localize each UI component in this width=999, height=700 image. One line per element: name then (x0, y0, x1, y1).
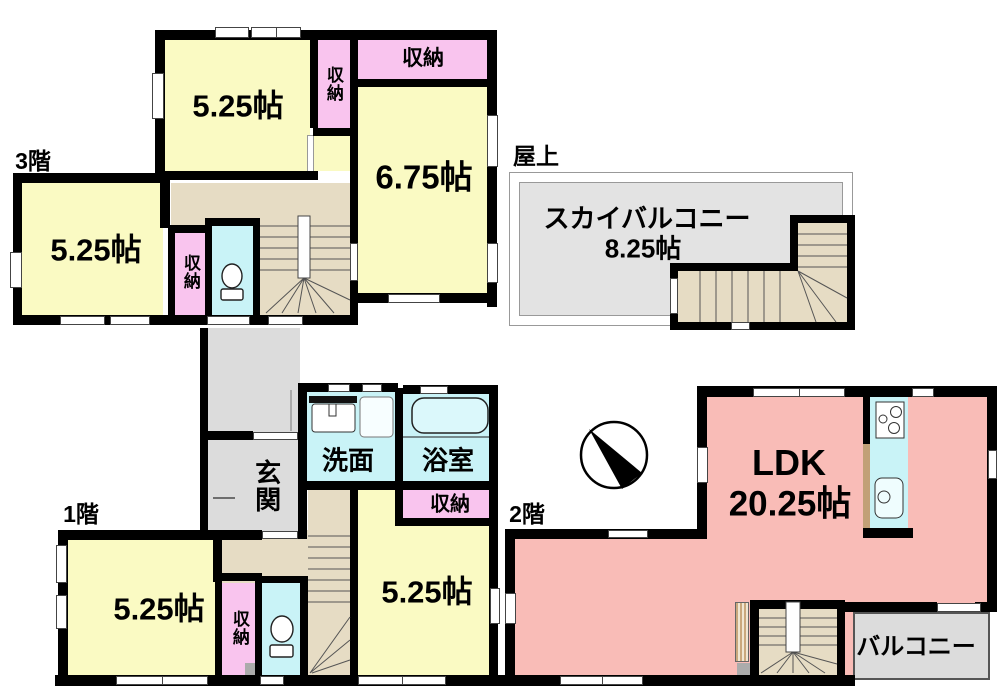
window-opening (912, 388, 934, 397)
toilet-1f-floor (262, 583, 300, 675)
wall (208, 431, 253, 440)
wall (505, 529, 707, 539)
wall (58, 530, 262, 540)
floor-label-roof: 屋上 (513, 144, 559, 168)
wall (298, 481, 498, 490)
wall (255, 580, 262, 676)
wall (790, 215, 855, 223)
wall (863, 392, 870, 444)
sliding-door-marker (307, 135, 314, 172)
wall (298, 385, 307, 539)
wall (155, 171, 318, 180)
wall (697, 386, 997, 397)
washroom-label: 洗面 (322, 447, 374, 474)
floor-plan: 3階 5.25帖 収納 収納 6.75帖 5.25帖 収納 屋上 スカイバルコニ… (0, 0, 999, 700)
wall (750, 600, 845, 609)
window-opening (937, 603, 981, 612)
wall (847, 215, 855, 330)
window-opening (253, 432, 298, 440)
floor-label-2f: 2階 (509, 502, 545, 526)
wall (505, 675, 855, 686)
window-opening (56, 545, 67, 583)
window-opening (608, 530, 648, 538)
window-opening (262, 531, 298, 539)
window-opening (358, 676, 446, 685)
stairs-3f-area (260, 183, 350, 315)
wall (395, 388, 403, 526)
ldk-size: 20.25帖 (729, 487, 852, 524)
window-opening (505, 593, 516, 624)
wall (403, 385, 497, 394)
window-opening (697, 447, 708, 483)
window-opening (988, 450, 997, 479)
wall (358, 79, 487, 87)
room-3f-left-size: 5.25帖 (50, 235, 141, 268)
window-opening (56, 595, 67, 629)
wall (13, 173, 22, 325)
window-opening (490, 588, 500, 624)
wall (310, 40, 318, 128)
sky-balcony-name: スカイバルコニー (544, 205, 751, 232)
stairs-roof-horizontal-area (678, 271, 847, 322)
window-opening (350, 243, 358, 281)
stairs-2f-railing (735, 602, 749, 662)
wall (300, 576, 308, 676)
window-opening (328, 384, 350, 392)
window-opening (487, 243, 498, 283)
wall (863, 528, 913, 538)
wall (215, 580, 222, 676)
window-opening (731, 322, 750, 330)
room-3f-right-size: 6.75帖 (375, 161, 472, 196)
room-3f-top-nook (313, 136, 350, 171)
wall (200, 328, 208, 539)
wall (350, 483, 358, 676)
wall (398, 518, 498, 526)
window-opening (362, 384, 382, 392)
wall (670, 263, 798, 271)
window-opening (388, 294, 440, 303)
wall (168, 225, 175, 317)
window-opening (116, 676, 208, 685)
window-opening (215, 27, 249, 38)
storage-3f-topright-label: 収納 (402, 48, 444, 70)
window-opening (207, 316, 250, 325)
window-opening (152, 73, 164, 119)
wall (987, 386, 997, 612)
room-1f-right-size: 5.25帖 (381, 577, 472, 610)
bathroom-label: 浴室 (422, 447, 474, 474)
wall (155, 30, 497, 40)
wall (205, 218, 260, 226)
window-opening (670, 278, 678, 314)
stairs-1f-area (308, 490, 350, 675)
stairs-roof-vertical-area (798, 223, 847, 271)
toilet-3f-floor (212, 226, 253, 315)
window-opening (110, 316, 150, 325)
storage-1f-left-label: 収納 (230, 610, 248, 646)
stairs-2f-area (759, 609, 837, 675)
window-opening (420, 386, 448, 394)
window-opening (60, 316, 105, 325)
window-opening (268, 316, 303, 325)
window-opening (560, 676, 643, 685)
window-opening (10, 252, 22, 288)
wall (253, 218, 260, 317)
wall (205, 218, 212, 317)
wall (845, 602, 937, 612)
wall (837, 600, 845, 686)
room-3f-top-size: 5.25帖 (192, 91, 283, 124)
wall (313, 128, 350, 136)
room-1f-left-size: 5.25帖 (113, 594, 204, 627)
wall (750, 600, 759, 686)
wall (13, 173, 163, 183)
window-opening (753, 388, 845, 397)
wall (489, 385, 498, 686)
wall (670, 322, 855, 330)
entrance-label: 玄関 (252, 459, 279, 513)
sky-balcony-size: 8.25帖 (605, 235, 682, 262)
wall (160, 180, 170, 228)
storage-3f-strip-label: 収納 (324, 66, 342, 102)
porch-floor (208, 328, 300, 433)
window-opening (260, 676, 284, 685)
floor-label-3f: 3階 (15, 149, 51, 173)
storage-3f-left-label: 収納 (181, 254, 199, 290)
balcony-label: バルコニー (856, 634, 976, 659)
window-opening (251, 27, 301, 38)
floor-label-1f: 1階 (63, 502, 99, 526)
kitchen-counter-fill (863, 442, 870, 528)
compass-icon (581, 422, 647, 489)
ldk-name: LDK (752, 444, 826, 482)
window-opening (487, 115, 498, 167)
storage-1f-bath-label: 収納 (430, 495, 470, 516)
kitchen-floor (870, 395, 908, 528)
